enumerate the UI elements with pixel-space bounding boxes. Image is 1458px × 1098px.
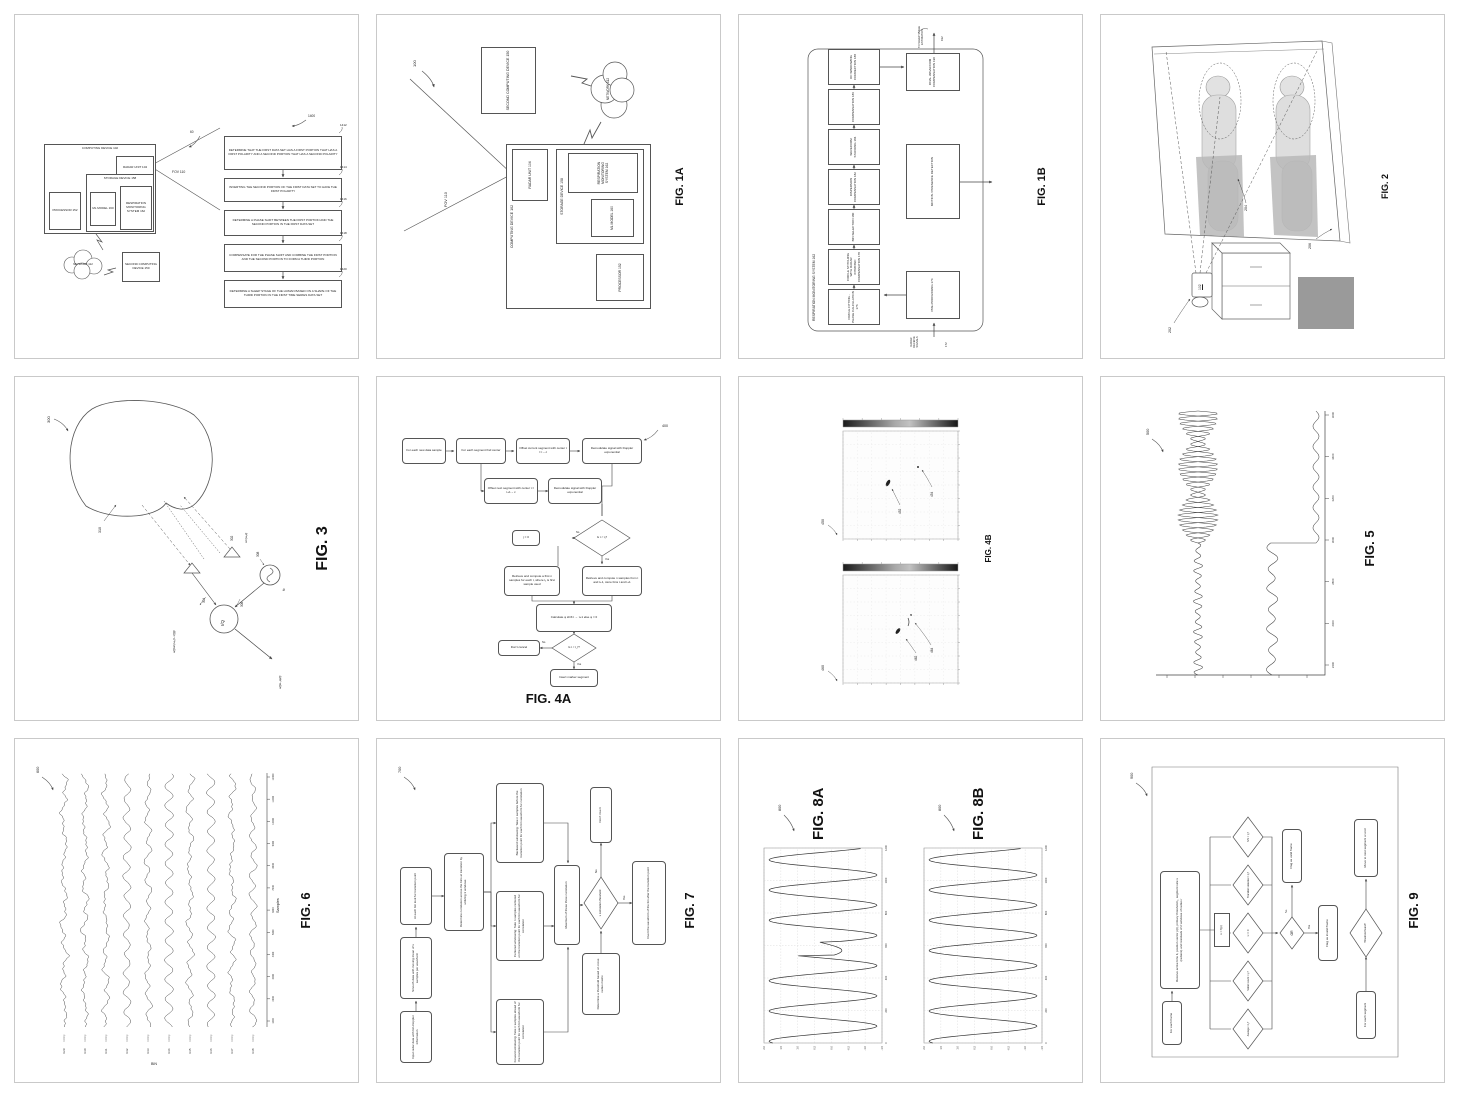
no-label: No [576, 531, 579, 534]
ref-400: 400 [662, 424, 668, 428]
svg-text:2800: 2800 [1331, 578, 1335, 585]
figure-caption: FIG. 3 [314, 386, 332, 711]
figure-caption: FIG. 6 [298, 748, 313, 1073]
svg-text:0.5: 0.5 [973, 1045, 977, 1049]
pre-processing-box: PRE-PROCESSING 174 [906, 271, 960, 319]
figure-5-chart: 2400260028003000320034003600 [1110, 386, 1435, 711]
svg-text:3000: 3000 [272, 973, 275, 979]
output-equation: a(t)e−jφ(t) [278, 676, 282, 689]
svg-text:1.0: 1.0 [796, 1045, 800, 1049]
figure-1b: RESPIRATION MONITORING SYSTEM 162 CIRCLE… [748, 24, 1073, 349]
stage-box: WAVEFORM STACKING 184 [828, 129, 880, 165]
svg-text:1000: 1000 [1044, 877, 1048, 883]
page-thumbnail-fig-9[interactable]: 900 For each frame Receive active bins b… [1100, 738, 1445, 1083]
svg-text:5000: 5000 [272, 929, 275, 935]
figure-caption: FIG. 4A [386, 691, 711, 706]
ref-302: 302 [230, 536, 234, 541]
figure-caption: FIG. 7 [682, 748, 697, 1073]
figure-4b: 460 450 462 464 452 454 FIG. 4B [748, 386, 1073, 711]
flow-box: Smooth data with moving mean of x sample… [400, 937, 432, 999]
flow-box: Input radar data with bin-Doppler inform… [400, 1011, 432, 1063]
page-thumbnail-fig-4b[interactable]: 460 450 462 464 452 454 FIG. 4B [738, 376, 1083, 721]
svg-text:InOnly: InOnly [105, 1034, 108, 1042]
svg-text:b32: b32 [125, 1048, 129, 1053]
svg-text:400: 400 [1044, 975, 1048, 980]
step-num: 1420 [340, 267, 347, 271]
respiration-system-box: RESPIRATION MONITORING SYSTEM 162 [568, 153, 638, 193]
yes-label: Yes [577, 663, 581, 666]
ref-304: 304 [202, 598, 206, 603]
figure-2: 202 102 204 206 FIG. 2 [1110, 24, 1435, 349]
svg-text:1.5: 1.5 [939, 1045, 943, 1049]
page-thumbnail-fig-1b[interactable]: RESPIRATION MONITORING SYSTEM 162 CIRCLE… [738, 14, 1083, 359]
flow-box: Retrieve and compute a first n samples f… [504, 566, 560, 596]
svg-text:800: 800 [884, 910, 888, 915]
figure-7: 700 Input radar data with bin-Doppler in… [386, 748, 711, 1073]
decision-label: Average > t₁? [1240, 1011, 1256, 1047]
or-diamond-label: OR [1286, 921, 1298, 945]
svg-text:600: 600 [1044, 943, 1048, 948]
svg-text:InOnly: InOnly [147, 1034, 150, 1042]
ref-102: 102 [1198, 284, 1202, 290]
second-computing-device-box: SECOND COMPUTING DEVICE 150 [481, 47, 536, 114]
decision-label: Motion count > t₂? [1240, 963, 1256, 999]
svg-text:InOnly: InOnly [168, 1034, 171, 1042]
figure-8-charts: 2.01.51.00.50.0-0.5-1.0-1.50200400600800… [748, 748, 1073, 1073]
ref-500: 500 [1146, 429, 1150, 435]
figure-4b-plots [748, 386, 1073, 711]
svg-text:0.0: 0.0 [989, 1045, 993, 1049]
flow-box: Receive active bins b, position vector p… [1160, 871, 1200, 989]
y-axis-label: BIN [151, 1062, 157, 1066]
step-num: 1416 [340, 197, 347, 201]
input-ref: 172 [944, 342, 948, 347]
fov-label: FOV 110 [444, 192, 448, 207]
rx-equation: a(t)sin(ω₀(t−τ(t))) [172, 631, 176, 653]
svg-text:400: 400 [884, 975, 888, 980]
decision-label: Transition detected > t₃? [1240, 867, 1256, 903]
ml-model-box: ML MODEL 160 [90, 192, 116, 226]
input-signal-label: RADAR RECEIVE SIGNALS [910, 335, 919, 349]
processor-box: PROCESSOR 152 [49, 192, 81, 230]
ref-600: 600 [36, 767, 40, 773]
flow-box: j = 0 [512, 530, 540, 546]
ref-462: 462 [914, 656, 918, 661]
iq-mixer-label: I/Q [220, 620, 225, 626]
figure-5: 2400260028003000320034003600 500 FIG. 5 [1110, 386, 1435, 711]
page-thumbnail-fig-7[interactable]: 700 Input radar data with bin-Doppler in… [376, 738, 721, 1083]
ref-454: 454 [930, 492, 934, 497]
decision-label: S/N > t₄? [1240, 819, 1256, 855]
figure-8: 2.01.51.00.50.0-0.5-1.0-1.50200400600800… [748, 748, 1073, 1073]
svg-text:-1.0: -1.0 [1023, 1045, 1027, 1050]
svg-text:3400: 3400 [1331, 453, 1335, 460]
svg-text:200: 200 [884, 1008, 888, 1013]
svg-text:b35: b35 [188, 1048, 192, 1053]
svg-text:1.5: 1.5 [779, 1045, 783, 1049]
no-label: No [595, 870, 598, 873]
ref-452: 452 [898, 509, 902, 514]
patent-pages-grid: COMPUTING DEVICE 102 RADAR UNIT 104 PROC… [0, 0, 1458, 1098]
svg-text:0: 0 [1044, 1042, 1048, 1044]
fov-label: FOV 110 [172, 170, 185, 174]
svg-text:8000: 8000 [272, 862, 275, 868]
ref-464: 464 [930, 648, 934, 653]
ref-460: 460 [821, 665, 825, 671]
ml-model-box: ML MODEL 160 [591, 199, 634, 237]
svg-text:3200: 3200 [1331, 495, 1335, 502]
svg-text:InOnly: InOnly [84, 1034, 87, 1042]
decision-label: Is t < t₁? [582, 528, 622, 548]
ref-206: 206 [1308, 243, 1312, 249]
flow-step: COMPENSATE FOR THE PHASE SHIFT AND COMBI… [224, 244, 342, 272]
figure-caption: FIG. 4B [984, 386, 993, 711]
flow-box: x = f(p) [1214, 913, 1230, 947]
figure-9-lines [1110, 748, 1435, 1073]
figure-3: 300 310 a(t)sin(ω₀(t−τ(t))) 304 sin(ω₀t)… [24, 386, 349, 711]
figure-4a: 400 For each new data sample For each se… [386, 386, 711, 711]
figure-caption: FIG. 1A [674, 24, 686, 349]
figure-3-art [24, 386, 349, 711]
svg-text:-0.5: -0.5 [846, 1045, 850, 1050]
svg-text:b33: b33 [146, 1048, 150, 1053]
svg-text:2.0: 2.0 [922, 1045, 926, 1049]
svg-text:b34: b34 [167, 1048, 171, 1053]
page-thumbnail-fig-6[interactable]: b29InOnlyb30InOnlyb31InOnlyb32InOnlyb33I… [14, 738, 359, 1083]
svg-text:2.0: 2.0 [762, 1045, 766, 1049]
page-thumbnail-fig-4a[interactable]: 400 For each new data sample For each se… [376, 376, 721, 721]
ref-800: 800 [778, 805, 782, 811]
yes-label: Yes [1308, 925, 1311, 929]
final-waveform-box: FINAL WAVEFORM COMPENSATION 190 [906, 53, 960, 91]
no-label: No [1285, 910, 1288, 913]
ref-204: 204 [1244, 205, 1248, 211]
svg-text:2600: 2600 [1331, 620, 1335, 627]
svg-text:-1.5: -1.5 [880, 1045, 884, 1050]
stage-box: DC WINDOWING CORRECTION 188 [828, 49, 880, 85]
svg-text:2000: 2000 [272, 995, 275, 1001]
flow-box: Determine a threshold based on cross rad… [582, 953, 620, 1015]
ref-700: 700 [398, 767, 402, 773]
page-thumbnail-fig-5[interactable]: 2400260028003000320034003600 500 FIG. 5 [1100, 376, 1445, 721]
svg-text:6000: 6000 [272, 907, 275, 913]
svg-text:9000: 9000 [272, 840, 275, 846]
svg-text:InOnly: InOnly [189, 1034, 192, 1042]
svg-text:1.0: 1.0 [956, 1045, 960, 1049]
svg-text:1000: 1000 [272, 1018, 275, 1024]
figure-caption: FIG. 9 [1406, 748, 1421, 1073]
step-num: 1412 [340, 123, 347, 127]
svg-text:3600: 3600 [1331, 411, 1335, 418]
x-axis-label: Samples [276, 898, 280, 913]
stage-box: CIRCLE FITTING - PHASE CALCULATION 176 [828, 289, 880, 325]
svg-text:b30: b30 [83, 1048, 87, 1053]
output-label: TO SLEEP STAGE ESTIMATION [918, 25, 924, 49]
ref-100: 100 [412, 60, 417, 67]
svg-text:200: 200 [1044, 1008, 1048, 1013]
ref-60: 60 [190, 130, 194, 134]
ref-450: 450 [821, 519, 825, 525]
flow-box: At each bin look for transition point [400, 867, 432, 925]
flow-box: Calculate φ shift t → t+1 else φ = 0 [536, 604, 612, 632]
figure-caption: FIG. 5 [1362, 386, 1377, 711]
svg-text:InOnly: InOnly [63, 1034, 66, 1042]
second-computing-device-box: SECOND COMPUTING DEVICE 150 [122, 252, 160, 282]
svg-text:7000: 7000 [272, 885, 275, 891]
svg-text:11000: 11000 [272, 795, 275, 802]
ref-306: 306 [240, 602, 244, 607]
figure-1a: 100 FOV 110 COMPUTING DEVICE 102 RADAR U… [386, 24, 711, 349]
network-cloud-label: NETWORK 112 [68, 262, 98, 266]
flow-box: Move to next segment or end [1354, 819, 1378, 877]
svg-text:0.0: 0.0 [829, 1045, 833, 1049]
processor-box: PROCESSOR 152 [596, 254, 644, 301]
ref-900: 900 [1130, 773, 1134, 779]
flow-box: Insert marker segment [550, 669, 598, 687]
flow-box: Retrieve and compute n samples from t an… [582, 566, 642, 596]
page-thumbnail-flowchart-1400[interactable]: COMPUTING DEVICE 102 RADAR UNIT 104 PROC… [14, 14, 359, 359]
motion-presence-box: MOTION / PRESENCE DETECTION [906, 144, 960, 219]
flow-box: Offset current segment with center t = t… [516, 438, 570, 464]
flow-box: Demodulate signal with Doppler exponenti… [548, 478, 602, 504]
svg-text:2400: 2400 [1331, 661, 1335, 668]
step-num: 1418 [340, 231, 347, 235]
flow-box: Maximum of these three correlation [554, 865, 580, 945]
svg-text:800: 800 [1044, 910, 1048, 915]
svg-text:0: 0 [884, 1042, 888, 1044]
svg-text:InOnly: InOnly [126, 1034, 129, 1042]
stage-box: DISPERSION COMPENSATION 182 [828, 169, 880, 205]
output-ref: 192 [940, 36, 944, 41]
ref-1400: 1400 [308, 114, 315, 118]
figure-caption: FIG. 1B [1036, 24, 1048, 349]
svg-text:3000: 3000 [1331, 536, 1335, 543]
decision-label: x == 0 [1240, 915, 1256, 951]
figure-caption: FIG. 8A [810, 787, 827, 840]
flow-box: Flag as invalid frame [1318, 905, 1338, 961]
respiration-system-box: RESPIRATION MONITORING SYSTEM 162 [120, 186, 152, 230]
oscillator-fc-label: fc [282, 588, 286, 591]
svg-text:1000: 1000 [884, 877, 888, 883]
svg-text:0.5: 0.5 [813, 1045, 817, 1049]
decision-label: Threshold found? [1359, 915, 1373, 951]
ref-310: 310 [98, 527, 102, 533]
flow-step: DETERMINE A SLEEP STAGE OF THE HUMAN BAS… [224, 280, 342, 308]
page-thumbnail-fig-8[interactable]: 2.01.51.00.50.0-0.5-1.0-1.50200400600800… [738, 738, 1083, 1083]
svg-text:-1.0: -1.0 [863, 1045, 867, 1050]
flow-box: Forward windowing: Take n samples ahead … [496, 999, 544, 1065]
yes-label: Yes [605, 558, 609, 561]
decision-label: x correlation threshold [592, 881, 610, 925]
svg-text:600: 600 [884, 943, 888, 948]
svg-text:4000: 4000 [272, 951, 275, 957]
ref-308: 308 [256, 552, 260, 557]
svg-text:10000: 10000 [272, 817, 275, 824]
svg-text:1200: 1200 [884, 845, 888, 851]
svg-text:-0.5: -0.5 [1006, 1045, 1010, 1050]
figure-caption: FIG. 2 [1380, 24, 1390, 349]
ref-202: 202 [1168, 327, 1172, 333]
network-cloud-label: NETWORK 112 [606, 69, 610, 109]
decision-label: Is t < t_f? [554, 640, 594, 656]
flow-step: INVERTING THE SECOND PORTION OF THE FIRS… [224, 178, 342, 202]
stage-box: COMPENSATION 186 [828, 89, 880, 125]
figure-9: 900 For each frame Receive active bins b… [1110, 748, 1435, 1073]
stage-box: BIN SELECTION 180 [828, 209, 880, 245]
ref-800: 800 [938, 805, 942, 811]
page-thumbnail-fig-1a[interactable]: 100 FOV 110 COMPUTING DEVICE 102 RADAR U… [376, 14, 721, 359]
tx-equation: sin(ω₀t) [244, 533, 248, 543]
svg-text:b29: b29 [62, 1048, 66, 1053]
flow-box: Offset next segment with center t = t+1 … [484, 478, 538, 504]
flow-box: For each new data sample [402, 438, 446, 464]
yes-label: Yes [623, 896, 626, 900]
svg-text:b31: b31 [104, 1048, 108, 1053]
flow-box: Determine correlation across the bins at… [444, 853, 484, 931]
svg-text:-1.5: -1.5 [1040, 1045, 1044, 1050]
flow-box: Centered windowing: Take n samples cente… [496, 891, 544, 961]
page-thumbnail-fig-3[interactable]: 300 310 a(t)sin(ω₀(t−τ(t))) 304 sin(ω₀t)… [14, 376, 359, 721]
flow-box: Demodulate signal with Doppler exponenti… [582, 438, 642, 464]
svg-text:b36: b36 [209, 1048, 213, 1053]
svg-text:InOnly: InOnly [210, 1034, 213, 1042]
page-thumbnail-fig-2[interactable]: 202 102 204 206 FIG. 2 [1100, 14, 1445, 359]
flow-box: Backward windowing: Take n samples befor… [496, 783, 544, 863]
figure-1400: COMPUTING DEVICE 102 RADAR UNIT 104 PROC… [24, 24, 349, 349]
svg-text:InOnly: InOnly [252, 1034, 255, 1042]
flow-box: Flag as valid frame [1282, 829, 1302, 883]
ref-300: 300 [46, 416, 51, 423]
figure-4a-lines [386, 386, 711, 711]
flow-box: For each segment find center [456, 438, 506, 464]
figure-caption: FIG. 8B [970, 787, 987, 840]
flow-step: DETERMINE A PHASE SHIFT BETWEEN THE FIRS… [224, 210, 342, 236]
step-num: 1414 [340, 165, 347, 169]
respiration-system-label: RESPIRATION MONITORING SYSTEM 162 [812, 254, 816, 321]
svg-text:b37: b37 [230, 1048, 234, 1053]
svg-text:b38: b38 [251, 1048, 255, 1053]
flow-step: DETERMINE THAT THE FIRST DATA SET HAS A … [224, 136, 342, 170]
no-label: No [542, 641, 545, 644]
figure-6: b29InOnlyb30InOnlyb31InOnlyb32InOnlyb33I… [24, 748, 349, 1073]
flow-box: Invert the waveform of the bin after the… [632, 861, 666, 945]
flow-box: For each frame [1162, 1001, 1182, 1045]
radar-unit-box: RADAR UNIT 104 [512, 149, 548, 201]
svg-text:1200: 1200 [1044, 845, 1048, 851]
flow-box: Don't invert [590, 787, 612, 843]
svg-text:InOnly: InOnly [231, 1034, 234, 1042]
flow-box: Don't cancel [498, 640, 540, 656]
flow-box: For each segment [1356, 991, 1376, 1039]
svg-text:12000: 12000 [272, 773, 275, 780]
stage-box: CIRCLE STITCHING WITH RADAR INTRINSIC CO… [828, 249, 880, 285]
